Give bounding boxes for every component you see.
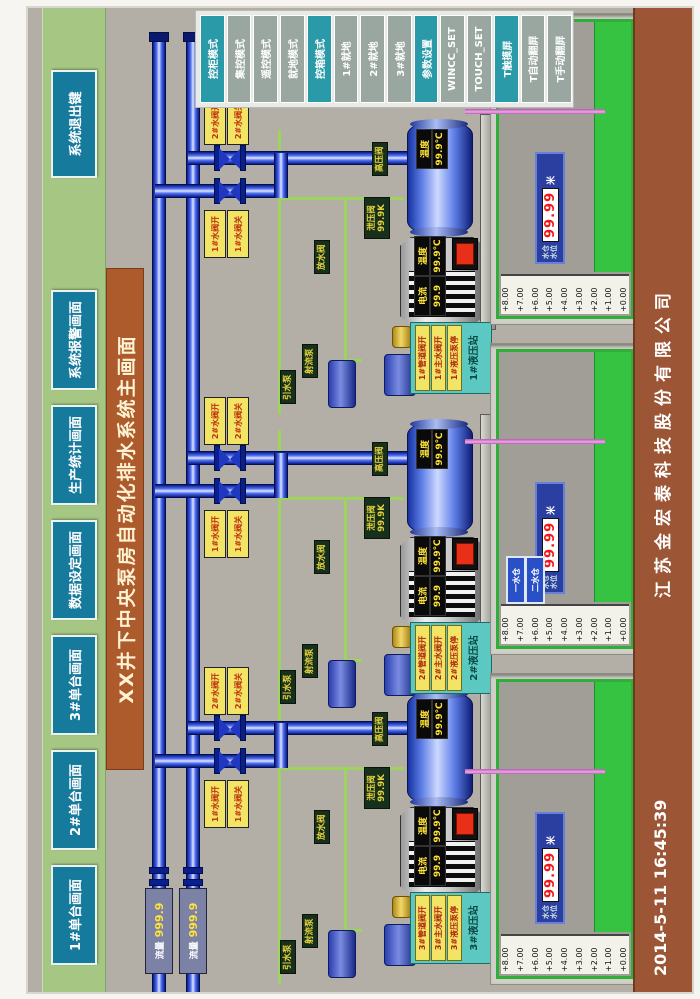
tank-interior: +8.00+7.00+6.00+5.00+4.00+3.00+2.00+1.00… [496, 349, 634, 649]
drain-valve-tag: 放水阀 [314, 810, 330, 844]
hp-valve-tag: 高压阀 [372, 142, 388, 176]
scale-tick: +8.00 [502, 936, 510, 974]
level-sensor-line [465, 439, 605, 444]
prime-pump-tag: 引水泵 [280, 940, 296, 974]
level-unit: 米 [544, 836, 557, 845]
run-indicator-lamp [452, 538, 478, 570]
motor-temp-label: 温度 [414, 806, 430, 846]
mode-button-touch-set[interactable]: TOUCH_SET [467, 15, 492, 103]
hydraulic-station-3: 3#管道阀开 3#主水阀开 3#液压泵停 3#液压站 [410, 892, 492, 964]
hydraulic-item: 3#管道阀开 [415, 895, 430, 961]
scale-tick: +5.00 [546, 606, 554, 644]
mode-button-remote[interactable]: 遥控模式 [253, 15, 278, 103]
scale-tick: +2.00 [591, 606, 599, 644]
level-sensor-line [465, 769, 605, 774]
hydraulic-line [344, 198, 347, 362]
branch-connector-pipe [274, 153, 288, 198]
level-scale: +8.00+7.00+6.00+5.00+4.00+3.00+2.00+1.00… [501, 934, 629, 974]
hydraulic-title: 3#液压站 [465, 895, 480, 961]
motor-temp-label: 温度 [414, 536, 430, 576]
scale-tick: +8.00 [502, 276, 510, 314]
relief-valve-tag: 泄压阀 99.9K [364, 197, 390, 239]
scada-main-screen: 1#单台画面 2#单台画面 3#单台画面 数据设定画面 生产统计画面 系统报警画… [28, 8, 692, 992]
water-fill [594, 22, 631, 272]
hydraulic-item: 3#液压泵停 [447, 895, 462, 961]
level-display: 水仓水位 99.99 米 [535, 152, 565, 264]
level-unit: 米 [544, 176, 557, 185]
branch-connector-pipe [274, 453, 288, 498]
motor-current-label: 电流 [414, 576, 430, 616]
scale-tick: +3.00 [576, 606, 584, 644]
relief-valve-tag: 泄压阀 99.9K [364, 767, 390, 809]
scale-tick: +6.00 [532, 606, 540, 644]
hydraulic-item: 2#主水阀开 [431, 625, 446, 691]
scale-tick: +0.00 [620, 936, 628, 974]
hydraulic-item: 2#管道阀开 [415, 625, 430, 691]
level-value: 99.99 [542, 188, 559, 242]
motor-temp-label: 温度 [414, 236, 430, 276]
scale-tick: +3.00 [576, 276, 584, 314]
level-scale: +8.00+7.00+6.00+5.00+4.00+3.00+2.00+1.00… [501, 604, 629, 644]
hydraulic-station-1: 1#管道阀开 1#主水阀开 1#液压泵停 1#液压站 [410, 322, 492, 394]
scale-tick: +0.00 [620, 606, 628, 644]
motor-temp-value: 99.9℃ [430, 536, 446, 576]
valve-open-tag: 1#水阀开 [204, 210, 226, 258]
mode-button-manual-flip[interactable]: T手动翻屏 [547, 15, 572, 103]
mode-button-box[interactable]: 控箱模式 [307, 15, 332, 103]
water-sump-tank-2: +8.00+7.00+6.00+5.00+4.00+3.00+2.00+1.00… [490, 343, 640, 655]
motor-current-value: 99.9 [430, 276, 446, 316]
scale-tick: +1.00 [605, 276, 613, 314]
scale-tick: +6.00 [532, 276, 540, 314]
water-fill [594, 682, 631, 932]
pipe-1-end-cap [149, 32, 169, 42]
level-scale: +8.00+7.00+6.00+5.00+4.00+3.00+2.00+1.00… [501, 274, 629, 314]
jet-pump-icon [328, 930, 356, 978]
mode-panel: 控柜模式 集控模式 遥控模式 就地模式 控箱模式 1#就地 2#就地 3#就地 … [195, 10, 574, 108]
motor-temp-value: 99.9℃ [430, 236, 446, 276]
mode-button-1-local[interactable]: 1#就地 [334, 15, 359, 103]
yellow-fitting-icon [392, 896, 412, 918]
hydraulic-line [344, 498, 347, 662]
level-unit: 米 [544, 506, 557, 515]
scale-tick: +7.00 [517, 606, 525, 644]
relief-valve-label: 泄压阀 [367, 201, 377, 235]
scale-tick: +4.00 [561, 276, 569, 314]
relief-valve-tag: 泄压阀 99.9K [364, 497, 390, 539]
hydraulic-item: 2#液压泵停 [447, 625, 462, 691]
valve-close-tag: 1#水阀关 [227, 510, 249, 558]
jet-pump-tag: 射流泵 [302, 344, 318, 378]
relief-valve-label: 泄压阀 [367, 501, 377, 535]
hp-valve-tag: 高压阀 [372, 442, 388, 476]
scale-tick: +3.00 [576, 936, 584, 974]
water-fill [594, 352, 631, 602]
prime-pump-tag: 引水泵 [280, 670, 296, 704]
level-label: 水仓 [542, 905, 550, 919]
motor-temp-value: 99.9℃ [430, 806, 446, 846]
valve-open-tag: 1#水阀开 [204, 780, 226, 828]
scale-tick: +2.00 [591, 936, 599, 974]
pump-temp-label: 温度 [416, 429, 432, 469]
run-indicator-lamp [452, 808, 478, 840]
motor-current-label: 电流 [414, 276, 430, 316]
motor-current-value: 99.9 [430, 846, 446, 886]
jet-pump-tag: 射流泵 [302, 644, 318, 678]
jet-pump-icon [328, 660, 356, 708]
water-sump-tank-3: +8.00+7.00+6.00+5.00+4.00+3.00+2.00+1.00… [490, 673, 640, 985]
mode-button-wincc-set[interactable]: WINCC_SET [440, 15, 465, 103]
company-name: 江苏金宏泰科技股份有限公司 [649, 132, 674, 752]
mode-button-local[interactable]: 就地模式 [280, 15, 305, 103]
discharge-valve-2[interactable] [214, 447, 246, 471]
discharge-valve-1[interactable] [214, 750, 246, 774]
discharge-valve-2[interactable] [214, 147, 246, 171]
level-label: 水仓 [542, 245, 550, 259]
valve-close-tag: 1#水阀关 [227, 780, 249, 828]
hydraulic-item: 1#液压泵停 [447, 325, 462, 391]
drain-valve-tag: 放水阀 [314, 540, 330, 574]
pump-temp-label: 温度 [416, 129, 432, 169]
scale-tick: +5.00 [546, 936, 554, 974]
hydraulic-title: 2#液压站 [465, 625, 480, 691]
discharge-valve-1[interactable] [214, 480, 246, 504]
level-label: 水位 [550, 245, 558, 259]
scale-tick: +5.00 [546, 276, 554, 314]
yellow-fitting-icon [392, 626, 412, 648]
jet-pump-icon [328, 360, 356, 408]
mode-button-central[interactable]: 集控模式 [227, 15, 252, 103]
level-sensor-line [465, 109, 605, 114]
relief-valve-label: 泄压阀 [367, 771, 377, 805]
scale-tick: +4.00 [561, 936, 569, 974]
yellow-fitting-icon [392, 326, 412, 348]
hydraulic-title: 1#液压站 [465, 325, 480, 391]
mode-button-2-local[interactable]: 2#就地 [360, 15, 385, 103]
valve-close-tag: 1#水阀关 [227, 210, 249, 258]
datetime-display: 2014-5-11 16:45:39 [651, 800, 670, 976]
prime-pump-tag: 引水泵 [280, 370, 296, 404]
mode-button-3-local[interactable]: 3#就地 [387, 15, 412, 103]
scale-tick: +2.00 [591, 276, 599, 314]
scale-tick: +1.00 [605, 606, 613, 644]
scale-tick: +4.00 [561, 606, 569, 644]
mode-button-param-set[interactable]: 参数设置 [414, 15, 439, 103]
scale-tick: +8.00 [502, 606, 510, 644]
mode-button-touchscreen[interactable]: T触摸屏 [494, 15, 519, 103]
level-display: 水仓水位 99.99 米 [535, 812, 565, 924]
sump1-button[interactable]: 一水仓 [506, 556, 526, 604]
hydraulic-line [344, 768, 347, 932]
scale-tick: +0.00 [620, 276, 628, 314]
sump2-button[interactable]: 二水仓 [525, 556, 545, 604]
mode-button-auto-flip[interactable]: T自动翻屏 [521, 15, 546, 103]
relief-valve-value: 99.9K [377, 771, 387, 805]
motor-current-value: 99.9 [430, 576, 446, 616]
run-indicator-lamp [452, 238, 478, 270]
scale-tick: +6.00 [532, 936, 540, 974]
scale-tick: +7.00 [517, 936, 525, 974]
motor-current-label: 电流 [414, 846, 430, 886]
relief-valve-value: 99.9K [377, 201, 387, 235]
hydraulic-item: 1#管道阀开 [415, 325, 430, 391]
drain-valve-tag: 放水阀 [314, 240, 330, 274]
level-value: 99.99 [542, 848, 559, 902]
relief-valve-value: 99.9K [377, 501, 387, 535]
scale-tick: +7.00 [517, 276, 525, 314]
pump-temp-value: 99.9℃ [432, 129, 448, 169]
scale-tick: +1.00 [605, 936, 613, 974]
hydraulic-item: 1#主水阀开 [431, 325, 446, 391]
pump-temp-value: 99.9℃ [432, 429, 448, 469]
screenshot-root: 1#单台画面 2#单台画面 3#单台画面 数据设定画面 生产统计画面 系统报警画… [0, 0, 700, 999]
branch-connector-pipe [274, 723, 288, 768]
mode-button-cabinet[interactable]: 控柜模式 [200, 15, 225, 103]
valve-open-tag: 1#水阀开 [204, 510, 226, 558]
footer-bar: 2014-5-11 16:45:39 江苏金宏泰科技股份有限公司 [633, 8, 692, 992]
discharge-valve-1[interactable] [214, 180, 246, 204]
hydraulic-station-2: 2#管道阀开 2#主水阀开 2#液压泵停 2#液压站 [410, 622, 492, 694]
hydraulic-item: 3#主水阀开 [431, 895, 446, 961]
tank-interior: +8.00+7.00+6.00+5.00+4.00+3.00+2.00+1.00… [496, 679, 634, 979]
level-label: 水位 [550, 905, 558, 919]
jet-pump-tag: 射流泵 [302, 914, 318, 948]
level-label: 水位 [550, 575, 558, 589]
